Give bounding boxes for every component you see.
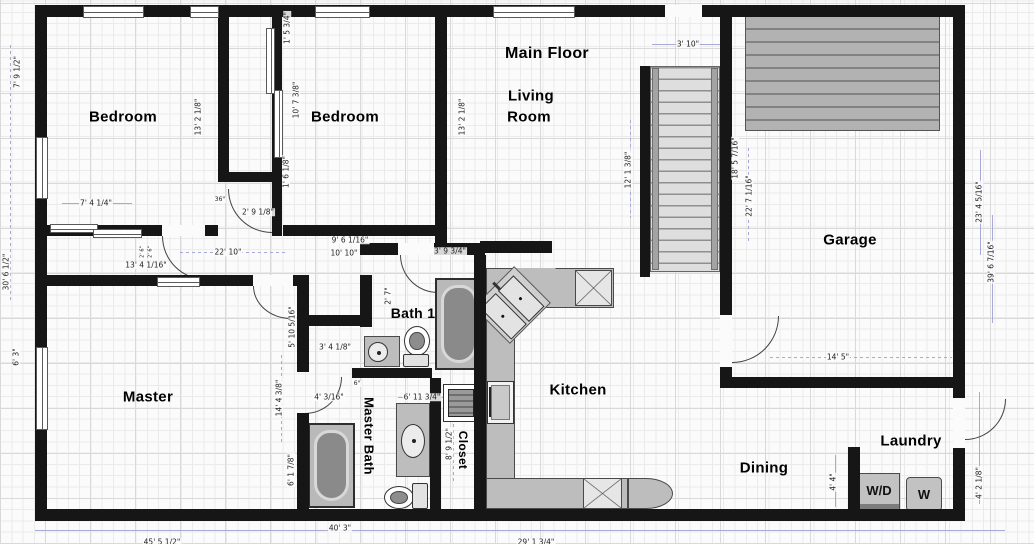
door-opening [720,315,732,367]
dimension-label: 30' 6 1/2" [2,253,10,292]
room-label-garage: Garage [823,232,877,249]
door-opening [953,398,965,448]
dimension-label: 2' 9 1/8" [241,208,275,216]
dim-line [770,357,952,358]
dimension-label: 10' 7 3/8" [292,81,300,120]
dimension-label: 22' 10" [214,248,243,256]
door-swing [253,286,291,319]
wall-segment [474,255,486,509]
wall-segment [352,368,432,378]
washer-dryer-label: W/D [866,483,891,498]
toilet [384,486,414,509]
dimension-label: 2' 6" [141,245,146,259]
room-label-living-room-line1: Living [508,88,554,105]
dimension-label: 12' 1 3/8" [624,151,632,190]
window [36,137,48,199]
wall-segment [35,5,47,521]
room-label-laundry: Laundry [880,433,941,450]
stair-rail [652,68,659,270]
wall-segment [218,17,229,177]
dimension-label: 23' 4 5/16" [975,180,983,223]
wall-segment [435,17,447,255]
wall-segment [360,275,372,327]
washer-unit: W [906,477,942,511]
dimension-label: 4' 3/16" [313,393,345,401]
bypass-closet-door [274,90,283,158]
wall-segment [297,413,309,509]
toilet-tank [403,354,429,367]
room-label-bath-1: Bath 1 [391,305,436,321]
room-label-master: Master [123,389,173,406]
dimension-label: 7' 4 1/4" [79,199,113,207]
window [493,6,575,18]
bath1-sink [368,342,388,362]
dimension-label: 18' 5 7/16" [731,136,739,179]
wall-segment [848,447,860,509]
dimension-label: 2' 6" [149,245,154,259]
room-label-bedroom-1: Bedroom [89,109,157,126]
room-label-main-floor-title: Main Floor [505,45,589,63]
dimension-label: 2' 7" [384,286,392,305]
door-opening [398,243,434,255]
dimension-label: 5' 10 5/16" [288,305,296,348]
wall-segment [480,241,552,253]
dimension-label: 3' 9 3/4" [433,247,467,255]
door-opening [253,275,293,286]
dimension-label: 6" [353,381,362,387]
dimension-label: 3' 10" [676,40,700,48]
dimension-label: 13' 4 1/16" [124,261,167,269]
dimension-label: 7' 9 1/2" [13,55,21,89]
window [83,6,144,18]
room-label-living-room-line2: Room [507,109,551,126]
dimension-label: 45' 5 1/2" [143,538,182,544]
dimension-label: 6' 3" [12,347,20,366]
bathtub-basin [441,285,477,363]
dimension-label: 29' 1 3/4" [517,538,556,544]
faucet-icon [492,282,501,291]
wall-segment [297,315,365,326]
stair-opening [665,5,702,17]
dimension-label: 6' 11 3/4" [403,393,442,401]
wall-segment [35,509,965,521]
refrigerator-door [491,385,510,420]
dimension-label: 13' 2 1/8" [194,98,202,137]
dimension-label: 8' 9 1/2" [445,427,453,461]
dimension-label: 4' 4" [829,472,837,491]
stair-rail [711,68,718,270]
dimension-label: 9' 6 1/16" [331,236,370,244]
washer-dryer-unit: W/D [858,473,900,513]
dimension-label: 40' 3" [328,524,352,532]
dimension-label: 1' 5 3/4" [283,11,291,45]
wall-segment [720,377,965,388]
cooktop-range [575,270,612,306]
kitchen-counter-end [628,478,673,509]
dimension-label: 6' 1 7/8" [287,453,295,487]
washer-label: W [918,487,930,502]
drain-icon [412,439,416,443]
room-label-kitchen: Kitchen [549,382,606,399]
dimension-label: 13' 2 1/8" [458,98,466,137]
refrigerator-handle [489,387,491,417]
door-swing [162,236,206,280]
toilet [404,326,430,356]
master-sink [401,424,425,458]
dimension-label: 3' 4 1/8" [318,343,352,351]
door-swing [732,316,779,363]
door-swing [400,255,438,293]
window [315,6,370,18]
dimension-label: 1' 6 1/8" [282,155,290,189]
dimension-label: 22' 7 1/16" [745,174,753,217]
bathtub-basin [314,430,349,501]
door-swing [965,399,1006,440]
garage-door-panel [745,14,940,131]
dimension-label: 39' 6 7/16" [987,240,995,283]
bypass-closet-door [50,224,98,233]
room-label-master-bath: Master Bath [362,397,377,475]
door-opening [162,225,205,236]
room-label-dining: Dining [740,460,788,477]
dimension-label: 10' 10" [330,249,359,257]
dim-line [35,530,1005,531]
dishwasher [583,478,622,509]
staircase [650,66,720,272]
window [190,6,219,18]
dimension-label: 36" [214,197,226,203]
room-label-closet: Closet [456,431,470,469]
dresser-drawers [448,389,474,417]
wall-segment [640,66,650,277]
dimension-label: 14' 5" [826,353,850,361]
dimension-label: 14' 4 3/8" [275,379,283,418]
floor-plan-canvas: W/D W Main FloorLivingRoomBedroomBedroom… [0,0,1034,544]
bypass-closet-door [266,28,275,94]
refrigerator [487,381,514,424]
toilet-tank [412,483,428,509]
bypass-closet-door [93,229,142,238]
dimension-label: 4' 2 1/8" [975,466,983,500]
window [36,347,48,430]
bypass-closet-door [157,277,200,287]
bathtub [308,423,355,508]
room-label-bedroom-2: Bedroom [311,109,379,126]
